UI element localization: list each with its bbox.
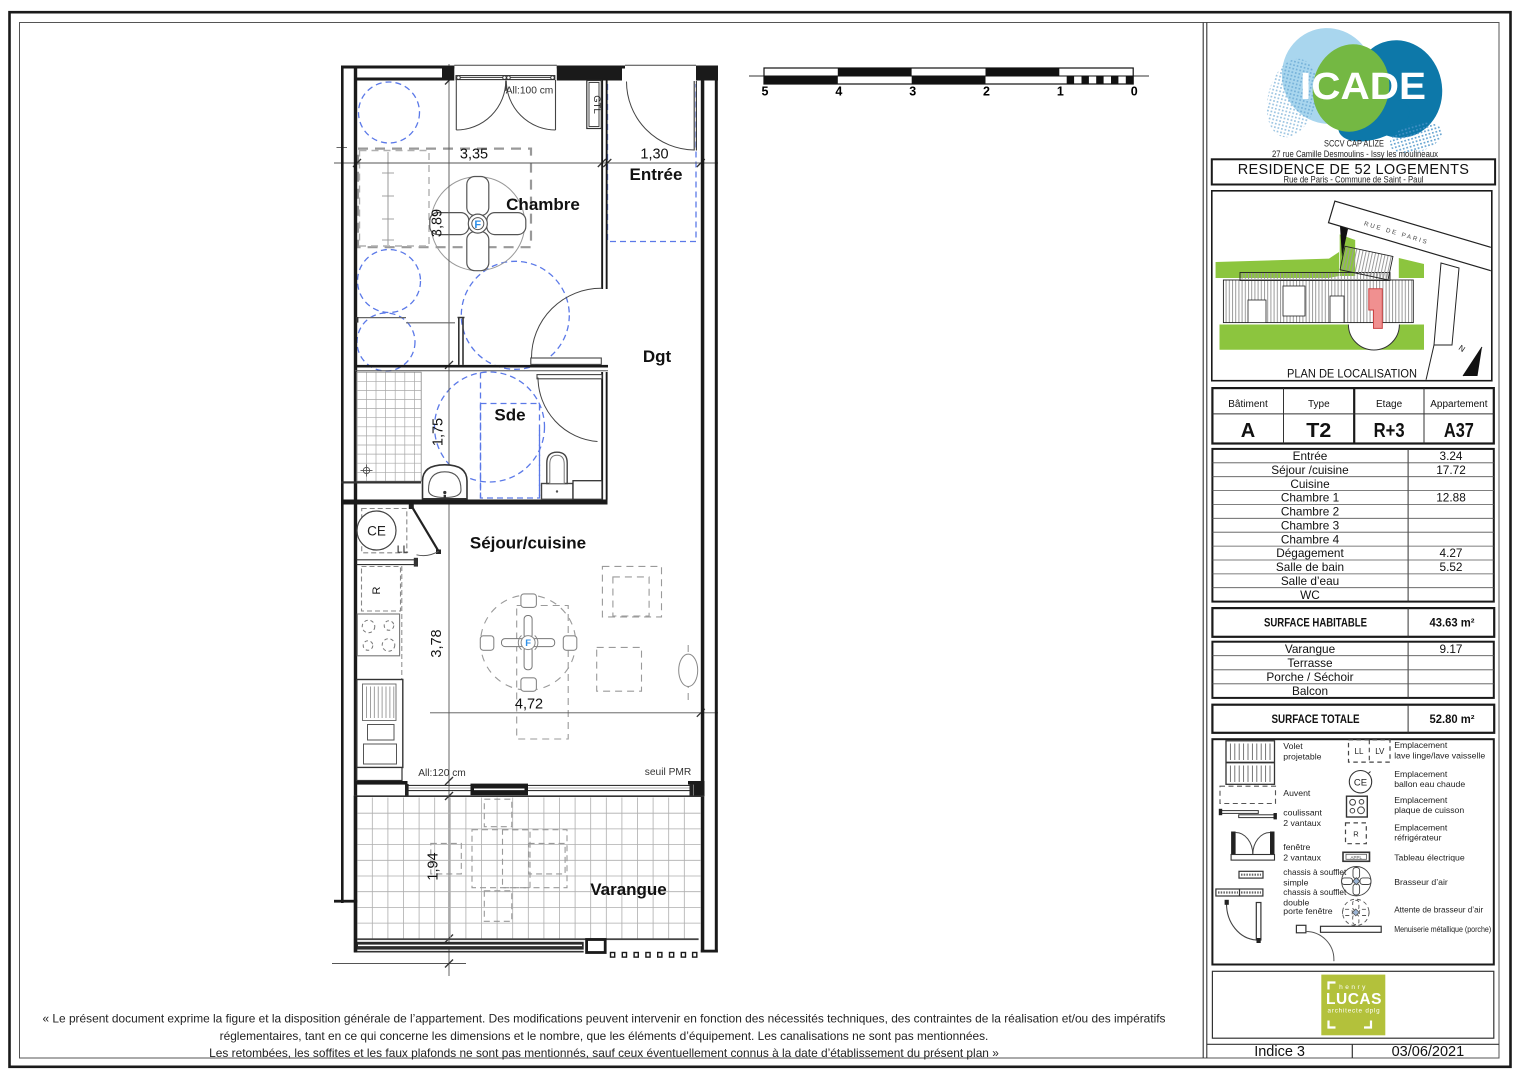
svg-text:5.52: 5.52 <box>1440 560 1463 574</box>
svg-text:Les retombées, les soffites et: Les retombées, les soffites et les faux … <box>209 1046 999 1060</box>
svg-text:Dgt: Dgt <box>643 347 672 366</box>
svg-text:Indice 3: Indice 3 <box>1254 1044 1305 1060</box>
svg-text:Chambre 4: Chambre 4 <box>1281 532 1340 546</box>
svg-text:Séjour/cuisine: Séjour/cuisine <box>470 534 586 553</box>
svg-text:F: F <box>525 638 531 649</box>
svg-text:R: R <box>371 586 383 594</box>
svg-text:Attente de brasseur d’air: Attente de brasseur d’air <box>1394 905 1483 915</box>
svg-text:2 vantaux: 2 vantaux <box>1283 818 1321 828</box>
svg-text:4.27: 4.27 <box>1440 546 1463 560</box>
svg-text:LUCAS: LUCAS <box>1326 991 1382 1008</box>
svg-text:3,78: 3,78 <box>429 629 445 657</box>
svg-text:Menuiserie métallique (porche): Menuiserie métallique (porche) <box>1394 924 1491 934</box>
svg-text:Séjour /cuisine: Séjour /cuisine <box>1271 463 1349 477</box>
svg-text:coulissant: coulissant <box>1283 808 1322 818</box>
svg-text:Chambre: Chambre <box>506 195 580 214</box>
svg-text:WC: WC <box>1300 588 1320 602</box>
svg-text:Varangue: Varangue <box>1285 642 1336 656</box>
svg-text:réglementaires, tant en ce qui: réglementaires, tant en ce qui concerne … <box>220 1029 989 1043</box>
svg-text:Entrée: Entrée <box>630 165 683 184</box>
svg-text:Emplacement: Emplacement <box>1394 769 1448 779</box>
svg-text:Porche / Séchoir: Porche / Séchoir <box>1266 670 1353 684</box>
svg-text:1,75: 1,75 <box>431 418 447 446</box>
svg-text:« Le présent document exprime: « Le présent document exprime la figure … <box>43 1012 1166 1026</box>
svg-text:R: R <box>1353 829 1359 838</box>
svg-text:Salle d’eau: Salle d’eau <box>1281 574 1339 588</box>
svg-text:27 rue Camille Desmoulins - Is: 27 rue Camille Desmoulins - Issy les mou… <box>1272 149 1438 159</box>
svg-text:17.72: 17.72 <box>1436 463 1466 477</box>
svg-text:ICADE: ICADE <box>1300 66 1426 108</box>
svg-text:seuil PMR: seuil PMR <box>645 767 691 778</box>
svg-text:Emplacement: Emplacement <box>1394 795 1448 805</box>
svg-text:5: 5 <box>762 85 769 99</box>
svg-text:simple: simple <box>1283 878 1308 888</box>
svg-text:Salle de bain: Salle de bain <box>1276 560 1344 574</box>
svg-text:43.63 m²: 43.63 m² <box>1430 618 1475 630</box>
svg-text:A: A <box>1241 420 1255 442</box>
svg-text:Sde: Sde <box>494 406 525 425</box>
svg-text:Terrasse: Terrasse <box>1287 656 1333 670</box>
svg-text:Varangue: Varangue <box>590 880 667 899</box>
svg-text:henry: henry <box>1339 984 1368 991</box>
svg-text:Entrée: Entrée <box>1293 449 1328 463</box>
svg-text:3: 3 <box>909 85 916 99</box>
svg-text:lave linge/lave vaisselle: lave linge/lave vaisselle <box>1394 751 1485 761</box>
svg-text:SURFACE HABITABLE: SURFACE HABITABLE <box>1264 618 1367 630</box>
svg-text:PLAN DE LOCALISATION: PLAN DE LOCALISATION <box>1287 369 1417 381</box>
svg-text:SURFACE TOTALE: SURFACE TOTALE <box>1272 714 1360 726</box>
svg-text:1,94: 1,94 <box>426 852 442 880</box>
svg-text:2: 2 <box>983 85 990 99</box>
svg-text:CE: CE <box>367 524 386 539</box>
svg-text:plaque de cuisson: plaque de cuisson <box>1394 805 1464 815</box>
svg-text:CE: CE <box>1354 777 1367 788</box>
svg-text:réfrigérateur: réfrigérateur <box>1394 833 1441 843</box>
svg-text:3,35: 3,35 <box>460 147 488 163</box>
svg-text:LV: LV <box>1375 747 1385 756</box>
svg-text:SCCV CAP ALIZE: SCCV CAP ALIZE <box>1324 139 1384 149</box>
svg-text:Volet: Volet <box>1283 741 1303 751</box>
svg-text:Type: Type <box>1308 399 1330 410</box>
svg-text:chassis à soufflet: chassis à soufflet <box>1283 867 1347 877</box>
svg-text:0: 0 <box>1131 85 1138 99</box>
svg-text:LL: LL <box>397 544 409 556</box>
svg-text:3.24: 3.24 <box>1440 449 1463 463</box>
svg-text:Tableau électrique: Tableau électrique <box>1394 853 1465 863</box>
svg-text:Etage: Etage <box>1376 399 1403 410</box>
svg-text:Balcon: Balcon <box>1292 684 1328 698</box>
svg-text:A37: A37 <box>1444 420 1474 442</box>
svg-text:Brasseur d’air: Brasseur d’air <box>1394 877 1448 887</box>
svg-text:9.17: 9.17 <box>1440 642 1463 656</box>
svg-text:ballon eau chaude: ballon eau chaude <box>1394 779 1465 789</box>
svg-text:LL: LL <box>1355 747 1364 756</box>
svg-text:52.80 m²: 52.80 m² <box>1430 714 1475 726</box>
svg-text:Auvent: Auvent <box>1283 788 1311 798</box>
svg-text:Dégagement: Dégagement <box>1276 546 1344 560</box>
svg-text:Emplacement: Emplacement <box>1394 740 1448 750</box>
svg-text:porte fenêtre: porte fenêtre <box>1283 906 1332 916</box>
svg-text:2 vantaux: 2 vantaux <box>1283 853 1321 863</box>
svg-text:architecte dplg: architecte dplg <box>1328 1008 1381 1015</box>
svg-text:Bâtiment: Bâtiment <box>1228 399 1268 410</box>
svg-text:All:120 cm: All:120 cm <box>418 768 466 779</box>
svg-text:1: 1 <box>1057 85 1064 99</box>
svg-text:Chambre 2: Chambre 2 <box>1281 505 1339 519</box>
svg-text:chassis à soufflet: chassis à soufflet <box>1283 887 1347 897</box>
svg-text:4,72: 4,72 <box>515 697 543 713</box>
svg-text:Emplacement: Emplacement <box>1394 823 1448 833</box>
svg-text:Chambre 3: Chambre 3 <box>1281 518 1340 532</box>
svg-text:1,30: 1,30 <box>640 147 668 163</box>
svg-text:4: 4 <box>835 85 842 99</box>
svg-text:Rue de Paris - Commune de Sain: Rue de Paris - Commune de Saint - Paul <box>1284 174 1424 184</box>
svg-text:Chambre 1: Chambre 1 <box>1281 491 1339 505</box>
svg-text:Cuisine: Cuisine <box>1290 477 1330 491</box>
svg-text:3,89: 3,89 <box>430 209 446 237</box>
svg-text:fenêtre: fenêtre <box>1283 842 1310 852</box>
svg-text:All:100 cm: All:100 cm <box>506 86 554 97</box>
svg-text:12.88: 12.88 <box>1436 491 1466 505</box>
svg-text:projetable: projetable <box>1283 752 1321 762</box>
svg-text:Appartement: Appartement <box>1430 399 1487 410</box>
svg-text:APPL: APPL <box>1351 855 1363 860</box>
svg-text:GTL: GTL <box>591 95 602 113</box>
svg-text:T2: T2 <box>1306 420 1331 442</box>
svg-text:03/06/2021: 03/06/2021 <box>1392 1044 1465 1060</box>
svg-text:R+3: R+3 <box>1374 420 1405 442</box>
svg-text:F: F <box>474 219 481 231</box>
